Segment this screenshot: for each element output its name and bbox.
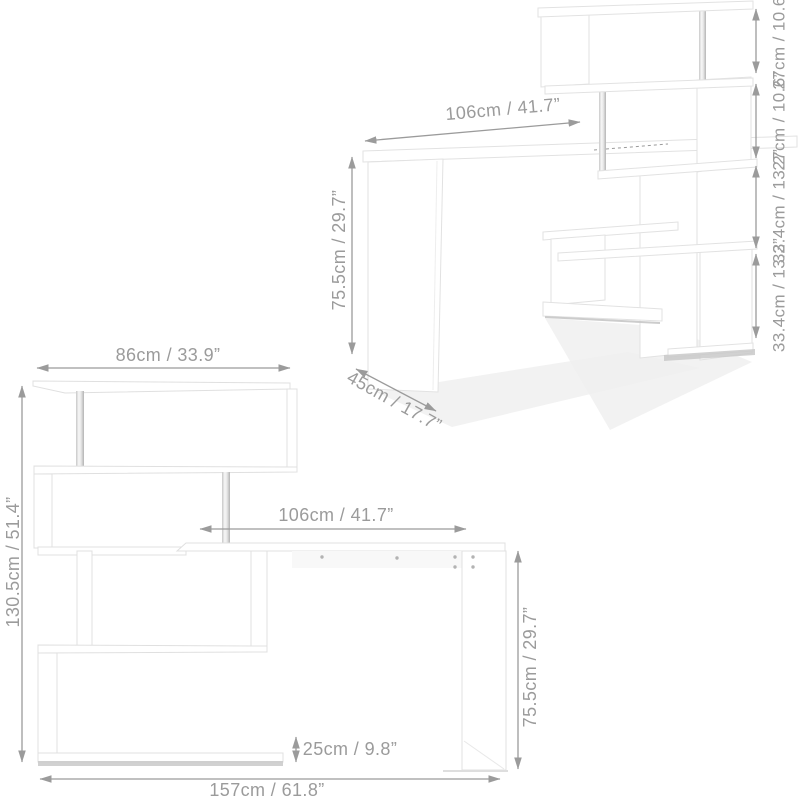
- segment-inch-value: / 13.2”: [770, 149, 789, 200]
- front-desk-right-leg: [462, 551, 506, 770]
- front-wall-mid-3: [77, 551, 92, 647]
- dim-label-total-height-front: 130.5cm / 51.4”: [4, 496, 24, 627]
- under-desk-shelf-wall: [551, 235, 605, 305]
- dim-label-desk-height-3d: 75.5cm / 29.7”: [330, 190, 350, 311]
- dim-label-desktop-width-front: 106cm / 41.7”: [278, 506, 393, 526]
- dim-label-shelf-width-front: 86cm / 33.9”: [116, 346, 221, 366]
- front-pole-1: [76, 391, 84, 468]
- shelf-wall-right-lower: [700, 242, 752, 360]
- desk-3d-illustration: [352, 1, 797, 430]
- shelf-wall-right-upper: [697, 77, 751, 172]
- front-desk-apron: [292, 551, 468, 568]
- segment-inch-value: / 13.2”: [770, 238, 789, 289]
- shelf-middle-wall: [640, 169, 697, 358]
- dim-arrow-desktop-width-3d: [365, 122, 580, 141]
- front-bottom-floor-strip: [38, 761, 283, 766]
- desk-left-leg: [368, 159, 443, 392]
- front-board-3: [38, 547, 186, 555]
- front-wall-left-bottom: [38, 653, 57, 755]
- front-board-4: [38, 645, 267, 653]
- dim-label-total-width-front: 157cm / 61.8”: [209, 781, 324, 800]
- front-board-2: [34, 466, 297, 474]
- dim-label-shelf-segment-4: 33.4cm / 13.2”: [770, 238, 789, 352]
- front-pole-2: [222, 472, 230, 543]
- dim-label-desk-height-front: 75.5cm / 29.7”: [521, 607, 541, 728]
- front-desk-top: [177, 543, 505, 551]
- shelf-pole: [699, 7, 706, 81]
- shelf-board-1: [538, 1, 753, 17]
- segment-inch-value: / 10.6”: [770, 0, 789, 41]
- product-dimension-diagram: 106cm / 41.7” 75.5cm / 29.7” 45cm / 17.7…: [0, 0, 800, 800]
- front-bottom-board: [38, 753, 283, 762]
- front-top-board: [33, 381, 290, 393]
- shelf-pole: [599, 92, 606, 172]
- desk-front-illustration: [22, 368, 518, 779]
- shelf-wall-left-top: [541, 12, 589, 87]
- front-desk-inner-leg: [251, 551, 267, 647]
- front-wall-right-top: [287, 389, 297, 468]
- segment-cm-value: 33.4cm: [770, 294, 789, 352]
- segment-inch-value: / 10.6”: [770, 71, 789, 122]
- dim-label-bottom-shelf-front: 25cm / 9.8”: [303, 740, 397, 760]
- front-wall-left-2: [34, 474, 52, 548]
